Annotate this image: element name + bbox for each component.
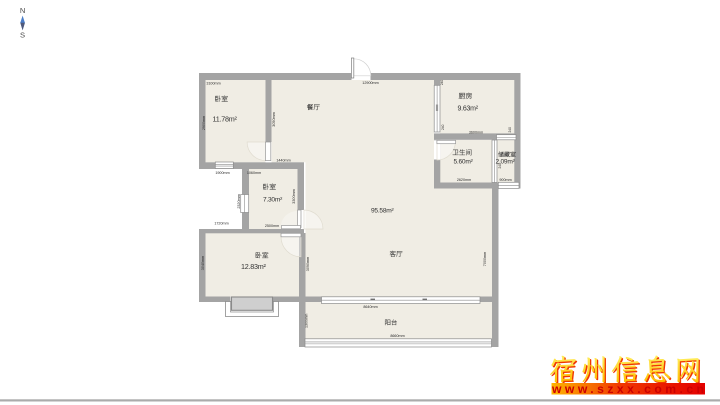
svg-text:S: S <box>20 31 25 40</box>
svg-text:2620mm: 2620mm <box>457 178 471 182</box>
svg-text:95.58m²: 95.58m² <box>371 207 394 214</box>
svg-text:1440mm: 1440mm <box>276 158 290 162</box>
svg-text:8640mm: 8640mm <box>363 305 377 309</box>
svg-text:N: N <box>20 6 25 15</box>
svg-text:1300mm: 1300mm <box>304 314 308 328</box>
svg-text:3600mm: 3600mm <box>469 131 483 135</box>
svg-text:240: 240 <box>508 127 512 133</box>
svg-text:3050mm: 3050mm <box>272 112 276 126</box>
svg-text:12900mm: 12900mm <box>362 81 378 85</box>
svg-text:2320mm: 2320mm <box>237 194 241 208</box>
svg-text:1900mm: 1900mm <box>215 171 229 175</box>
svg-text:1060mm: 1060mm <box>247 171 261 175</box>
svg-text:3100mm: 3100mm <box>206 82 220 86</box>
svg-text:5.60m²: 5.60m² <box>454 159 474 166</box>
svg-text:8660mm: 8660mm <box>390 334 404 338</box>
svg-text:1720mm: 1720mm <box>214 221 228 225</box>
svg-text:3090mm: 3090mm <box>306 257 310 271</box>
svg-text:240: 240 <box>440 80 444 86</box>
svg-text:9.63m²: 9.63m² <box>458 106 479 113</box>
svg-text:7.30m²: 7.30m² <box>263 196 283 203</box>
svg-text:2500mm: 2500mm <box>265 224 279 228</box>
svg-text:2900mm: 2900mm <box>202 116 206 130</box>
svg-text:11.78m²: 11.78m² <box>213 115 238 124</box>
svg-text:3040mm: 3040mm <box>201 256 205 270</box>
svg-text:240: 240 <box>441 124 445 130</box>
svg-text:7000mm: 7000mm <box>483 252 487 266</box>
svg-text:www.szxx.com.cn: www.szxx.com.cn <box>551 382 704 396</box>
svg-text:900mm: 900mm <box>499 178 511 182</box>
svg-text:12.83m²: 12.83m² <box>241 262 266 271</box>
svg-text:3300mm: 3300mm <box>292 189 296 203</box>
svg-text:240: 240 <box>498 163 502 169</box>
